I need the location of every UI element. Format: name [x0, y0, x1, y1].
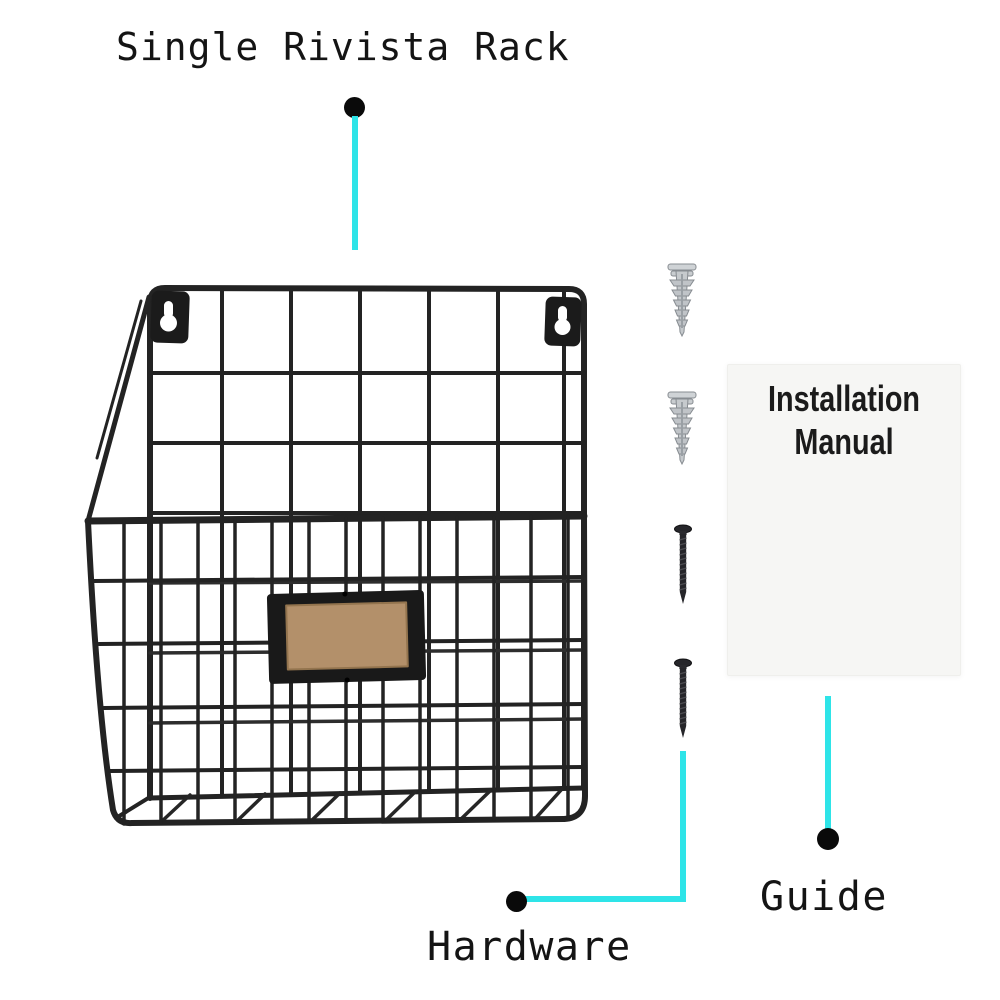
- installation-manual-sheet: Installation Manual: [727, 364, 961, 676]
- callout-dot-guide: [817, 828, 839, 850]
- installation-manual-label: Installation Manual: [751, 377, 937, 463]
- hardware-label: Hardware: [427, 924, 632, 970]
- screw-icon: [672, 658, 694, 742]
- callout-line-guide: [825, 696, 831, 829]
- wall-anchor-icon: [661, 262, 703, 338]
- rack-side-panel: [88, 297, 150, 823]
- mount-keyhole-bracket-left: [150, 290, 190, 343]
- callout-line-hardware-horizontal: [524, 896, 686, 902]
- wall-anchor-icon: [661, 390, 703, 466]
- screw-icon: [672, 524, 694, 608]
- mount-keyhole-bracket-right: [544, 296, 582, 346]
- rack-label-holder: [267, 589, 426, 684]
- page: { "product": { "title": "Single Rivista …: [0, 0, 1000, 1000]
- guide-label: Guide: [760, 874, 888, 920]
- callout-line-hardware-vertical: [680, 751, 686, 901]
- callout-dot-hardware: [506, 891, 527, 912]
- rack-back-panel: [150, 288, 584, 798]
